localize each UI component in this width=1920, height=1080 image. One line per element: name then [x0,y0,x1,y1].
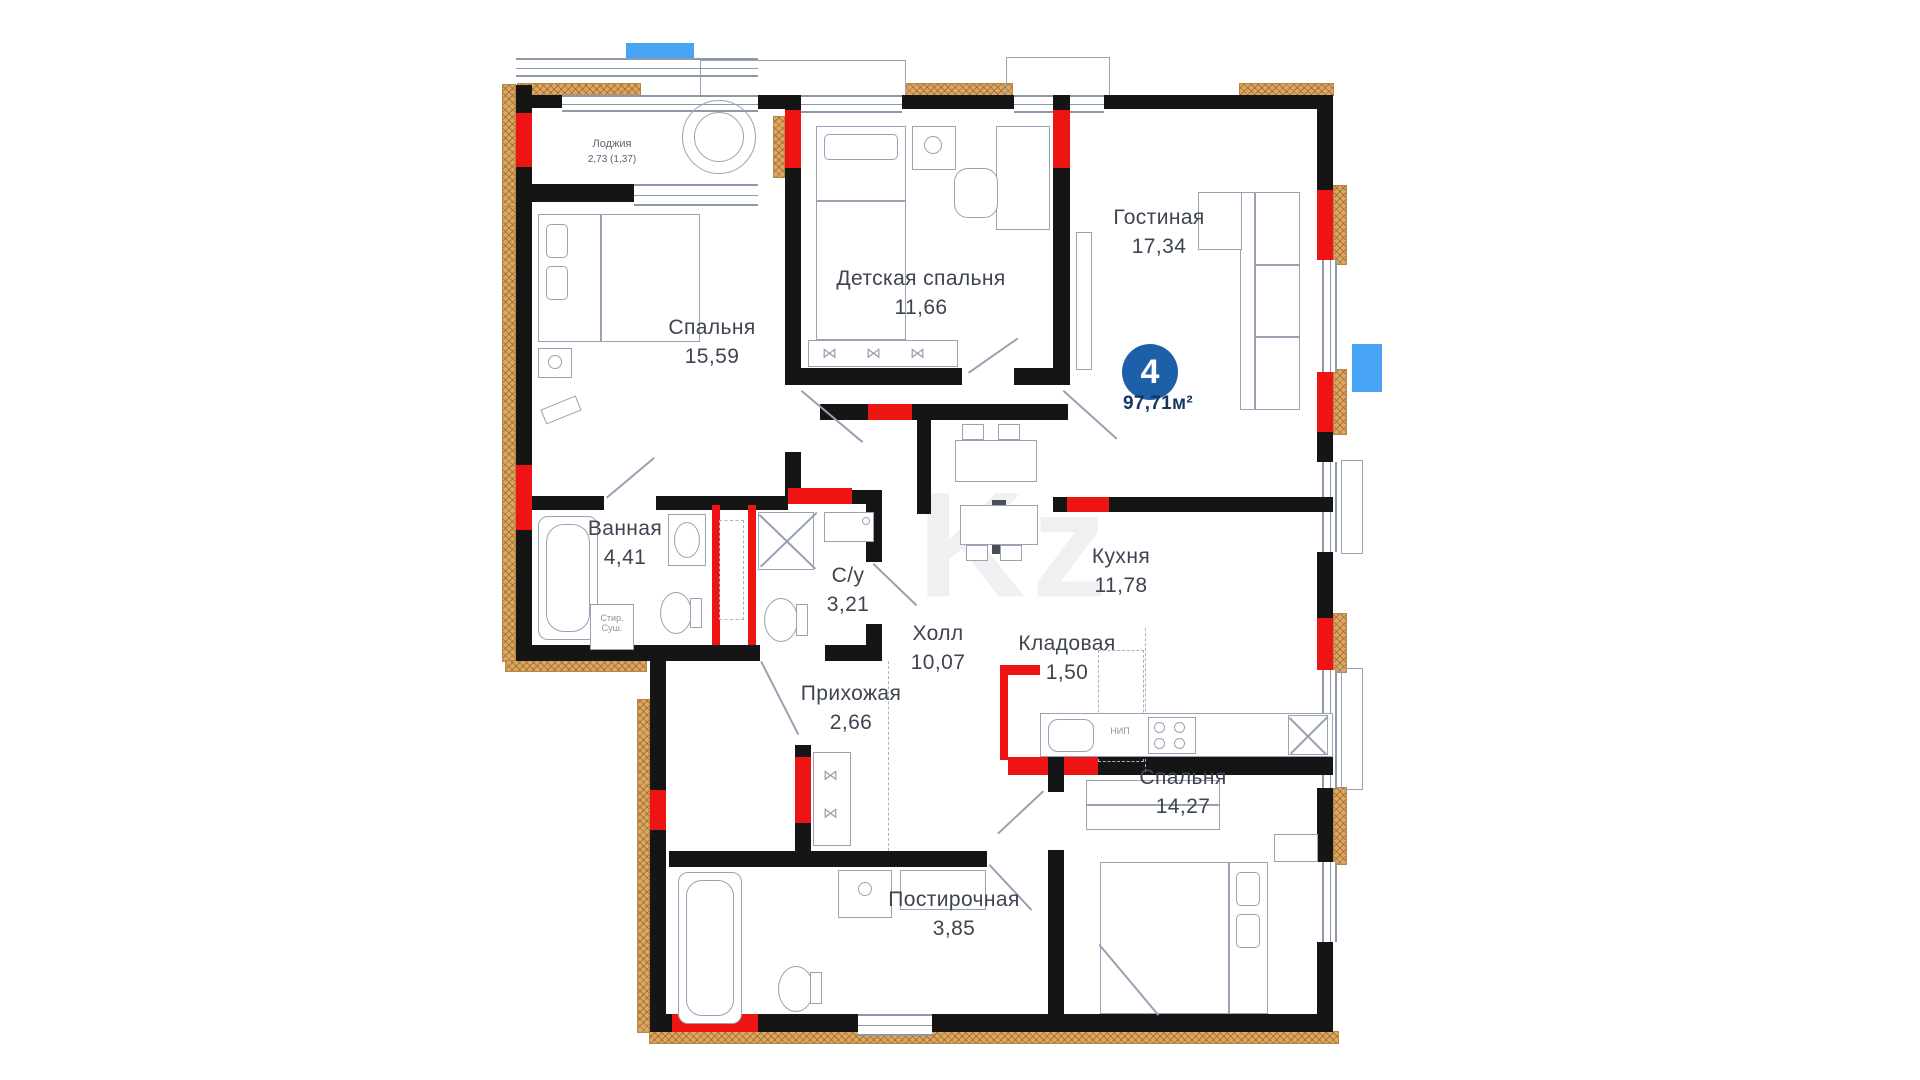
wall-shaft [748,505,756,645]
pillow-icon [1236,872,1260,906]
kitchen-sink-icon [1048,719,1094,752]
room-label-hall: Холл 10,07 [911,619,966,677]
pillow-icon [546,224,568,258]
duct-shaft [719,520,744,620]
sink-tap [862,517,870,525]
wall-load-bearing [650,790,666,830]
neighbor-balcony-outline [1341,460,1363,554]
window [792,95,902,113]
room-label-bedroom2: Спальня 14,27 [1139,763,1226,821]
room-label-entry: Прихожая 2,66 [801,679,902,737]
insulation [638,700,649,1032]
window [634,184,758,206]
insulation [1240,84,1333,95]
cooktop-label: НИП [1100,726,1140,736]
dryer-label: Суш. [602,623,623,633]
window [1322,260,1337,372]
wall [1317,95,1333,190]
wall-load-bearing [1000,665,1008,760]
wall [532,184,634,202]
pillow-icon [1236,914,1260,948]
wall-load-bearing [1317,190,1333,260]
chair-icon [1000,545,1022,561]
hanger-icon: ⋈ [866,346,881,361]
lamp-icon [548,355,562,369]
insulation [506,661,646,671]
door-children [968,338,1018,374]
wall [917,404,931,514]
wall [820,404,1068,420]
wall [1048,850,1064,1032]
wall-load-bearing [868,404,912,420]
room-label-laundry: Постирочная 3,85 [888,885,1020,943]
bay-window [700,60,906,96]
wall [669,851,987,867]
toilet-icon [660,592,692,634]
toilet-icon [778,966,814,1012]
wall [516,207,532,465]
bathtub-icon [546,524,590,632]
wall [795,745,811,757]
hanger-icon: ⋈ [823,768,838,783]
tv-icon [540,395,581,424]
wall [650,830,666,1032]
insulation [1334,186,1346,264]
insulation [503,207,515,661]
wall [1053,497,1067,512]
pillow-icon [546,266,568,300]
toilet-tank [796,604,808,636]
room-label-pantry: Кладовая 1,50 [1018,629,1115,687]
hanger-icon: ⋈ [823,806,838,821]
hanger-icon: ⋈ [822,346,837,361]
window [1322,862,1337,942]
chair-icon [966,545,988,561]
wall [1104,95,1333,109]
toilet-icon [764,598,798,642]
burner-icon [1174,722,1185,733]
room-label-living: Гостиная 17,34 [1113,203,1204,261]
door-living [1063,390,1118,440]
washer-dryer-stack: Стир. Суш. [590,604,634,650]
wall [932,1014,1333,1032]
sofa-line [1254,264,1300,266]
room-label-bathroom: Ванная 4,41 [588,514,662,572]
wall-load-bearing [516,113,532,167]
hanger-icon: ⋈ [910,346,925,361]
blue-marker-right [1352,344,1382,392]
plant-icon [924,136,942,154]
wall [902,95,1014,109]
chair-icon [954,168,998,218]
insulation [1334,788,1346,864]
bathtub-icon [686,880,734,1016]
wall [650,645,666,790]
room-label-children-bedroom: Детская спальня 11,66 [836,264,1005,322]
wall [1109,497,1333,512]
desk-icon [996,126,1050,230]
chair-icon [962,424,984,440]
insulation [1334,370,1346,434]
wall [1014,368,1054,385]
bed-line [816,200,906,202]
toilet-tank [690,598,702,628]
room-count-badge: 4 [1122,344,1178,400]
wall [1048,757,1064,792]
nightstand-icon [1274,834,1318,862]
dining-table-icon [960,505,1038,545]
wall [516,530,532,661]
wall [800,368,962,385]
wall-load-bearing [788,488,852,504]
wall-load-bearing [785,110,801,168]
wall-load-bearing [1053,110,1070,168]
wall [532,496,604,510]
wall [516,645,760,661]
sink-basin [674,522,700,558]
door-wc [873,563,918,606]
wall [516,167,532,207]
door-bedroom2 [997,791,1044,835]
wall [1317,552,1333,618]
room-label-bedroom: Спальня 15,59 [668,313,755,371]
wall-load-bearing [1067,497,1109,512]
door-entrance [760,661,799,735]
wall-load-bearing [516,465,532,530]
hanging-chair-icon [694,112,744,162]
insulation [774,117,784,177]
burner-icon [1154,738,1165,749]
bed-line [600,214,602,342]
dining-table-icon [955,440,1037,482]
sofa-line [1254,192,1256,410]
wall [516,95,562,108]
sofa-line [1254,336,1300,338]
insulation [650,1032,1338,1043]
burner-icon [1154,722,1165,733]
room-label-wc: С/у 3,21 [827,561,869,619]
sofa-icon [1240,192,1300,410]
door-bathroom [606,457,655,498]
wall [1317,788,1333,862]
wall-load-bearing [795,757,811,823]
pillow-icon [824,134,898,160]
room-count: 4 [1141,353,1160,392]
toilet-tank [810,972,822,1004]
insulation [906,84,1012,95]
washer-label: Стир. [600,613,623,623]
room-label-loggia: Лоджия 2,73 (1,37) [588,136,636,168]
burner-icon [1174,738,1185,749]
bay-window [1006,57,1110,96]
wall [656,496,788,510]
window [858,1014,932,1036]
wall [825,645,882,661]
insulation [503,85,515,207]
chair-icon [998,424,1020,440]
insulation [1334,614,1346,672]
wall [1317,432,1333,462]
total-area: 97,71м² [1123,393,1193,415]
wall-load-bearing [1317,372,1333,432]
room-label-kitchen: Кухня 11,78 [1092,542,1150,600]
bed-line [1228,862,1230,1014]
neighbor-balcony-outline [1341,668,1363,790]
floor-plan: Kz [0,0,1920,1080]
wall-load-bearing [1317,618,1333,670]
tv-console-icon [1076,232,1092,370]
sink-tap [858,882,872,896]
